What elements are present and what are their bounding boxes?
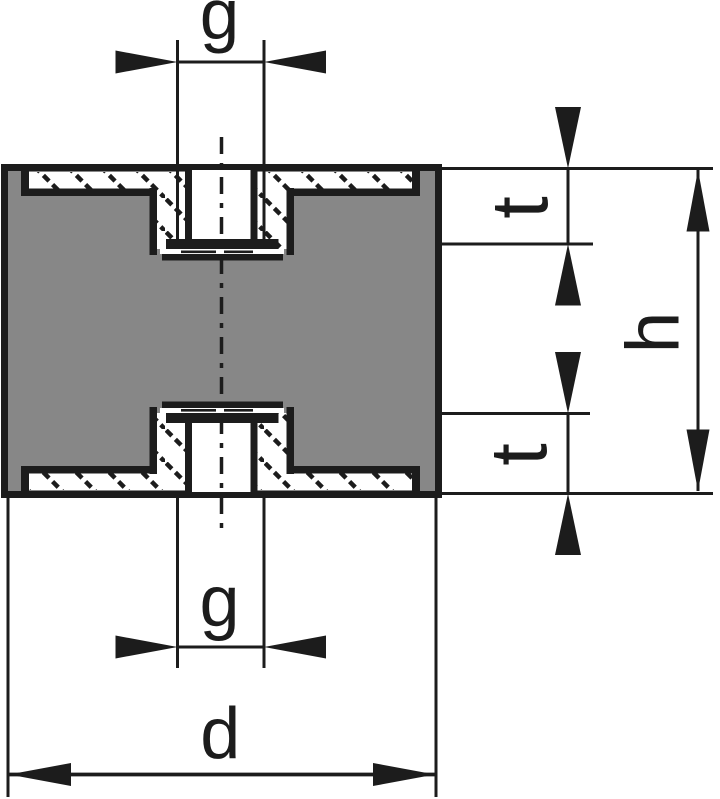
svg-text:h: h: [611, 312, 695, 354]
svg-text:g: g: [200, 0, 240, 55]
svg-text:t: t: [476, 196, 566, 219]
svg-text:g: g: [199, 562, 239, 642]
svg-text:d: d: [200, 694, 240, 774]
svg-text:t: t: [475, 443, 565, 466]
